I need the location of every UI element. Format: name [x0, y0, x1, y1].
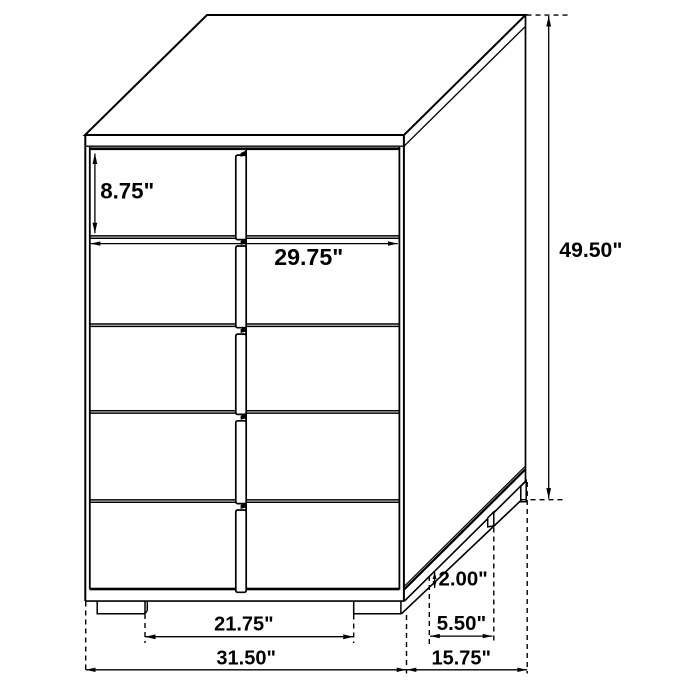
svg-text:8.75": 8.75" — [100, 179, 154, 204]
svg-text:15.75": 15.75" — [432, 648, 492, 670]
svg-text:29.75": 29.75" — [274, 244, 343, 270]
svg-text:21.75": 21.75" — [214, 614, 274, 636]
svg-text:5.50": 5.50" — [437, 613, 486, 635]
svg-text:31.50": 31.50" — [216, 648, 276, 670]
svg-text:2.00": 2.00" — [439, 569, 488, 591]
svg-text:49.50": 49.50" — [559, 239, 622, 262]
